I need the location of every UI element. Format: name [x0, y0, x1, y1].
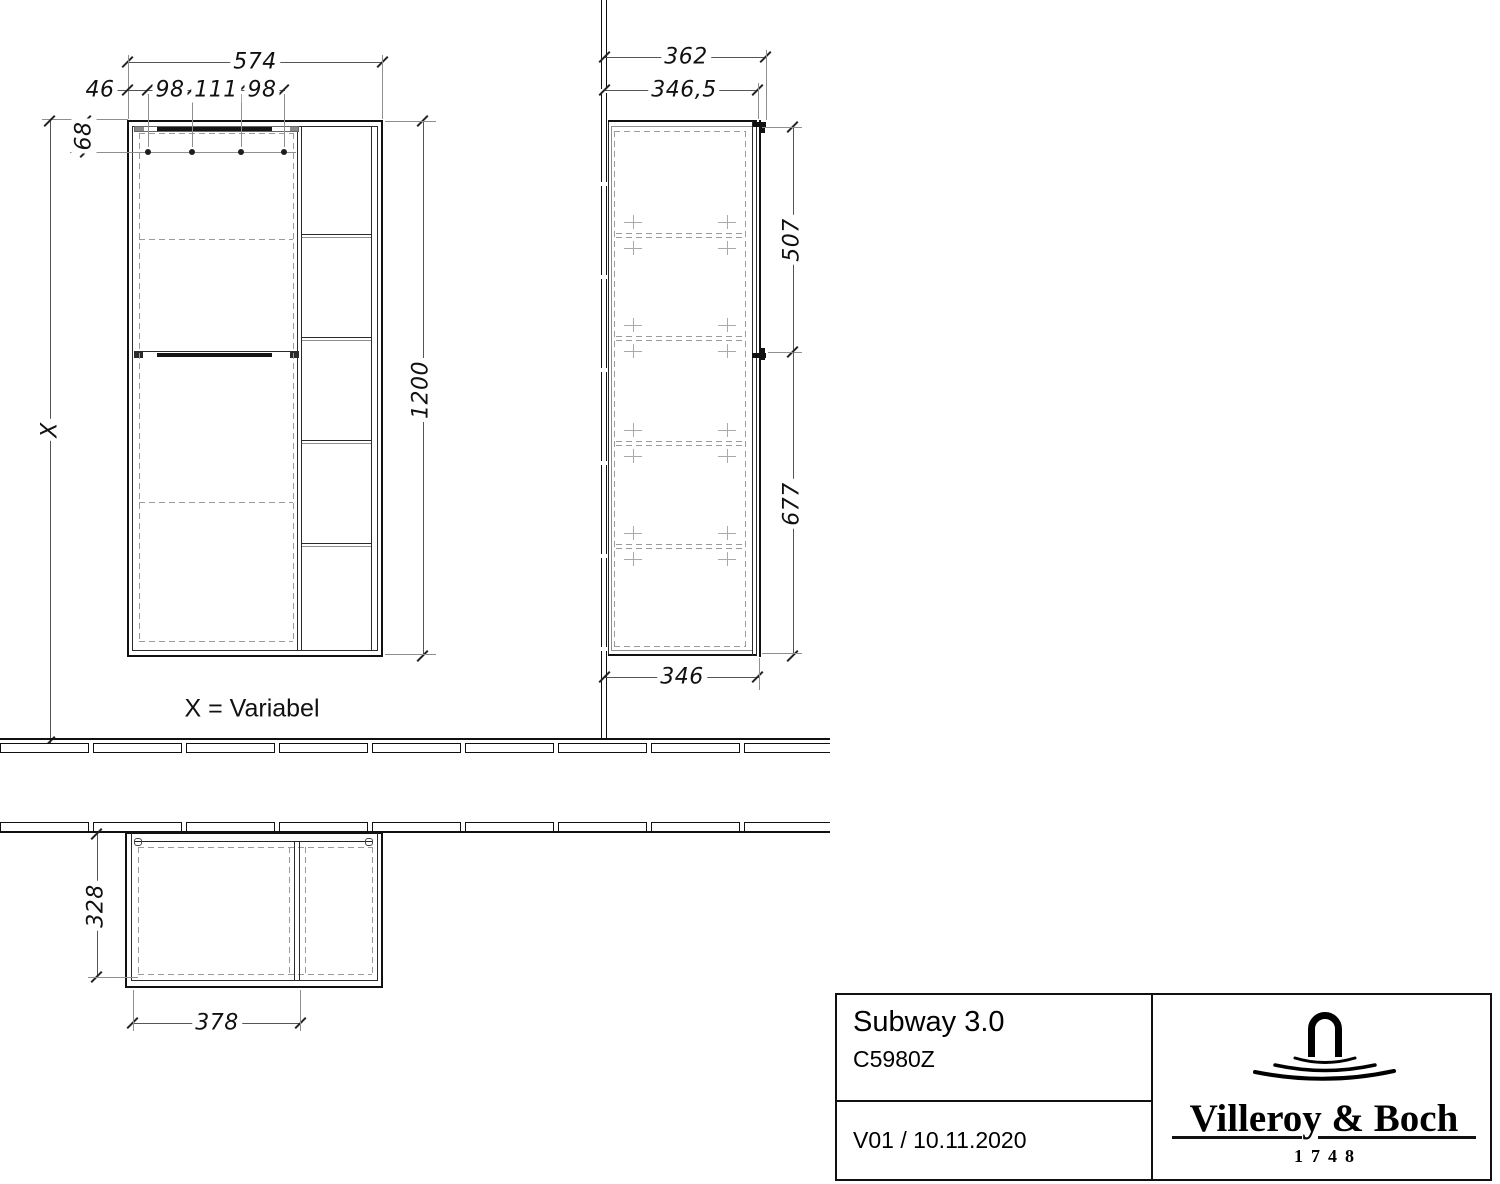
side-bottom-line	[608, 654, 757, 656]
shelf-pin-marker	[624, 344, 642, 358]
wall-segment	[601, 651, 607, 740]
extension-line	[758, 83, 759, 119]
wall-segment	[601, 279, 607, 368]
wall-section	[601, 0, 607, 740]
extension-line	[300, 990, 301, 1031]
upper-door-handle-bar	[157, 127, 272, 131]
shelf-line	[302, 543, 371, 544]
dim-text-111: 111	[191, 78, 241, 103]
extension-line	[382, 55, 383, 119]
side-bottom-inner-line	[611, 650, 752, 651]
extension-line	[88, 977, 138, 978]
brand-underline	[1172, 1136, 1302, 1139]
front-shelf-column-face-line	[371, 126, 372, 651]
hidden-interior-bottom	[614, 646, 745, 647]
shelf-pin-marker	[624, 449, 642, 463]
dim-text-507: 507	[780, 215, 805, 265]
extension-line	[241, 94, 242, 147]
shelf-pin-marker	[718, 449, 736, 463]
shelf-pin-marker	[718, 344, 736, 358]
hidden-top-line	[139, 133, 293, 134]
rail-end-knob	[134, 838, 142, 846]
extension-line	[133, 990, 134, 1031]
floor-tiles	[0, 743, 830, 753]
shelf-pin-marker	[718, 552, 736, 566]
front-inner-bottom-line	[132, 650, 378, 651]
wall-segment	[601, 93, 607, 182]
lower-door-handle-bar	[157, 353, 272, 357]
mounting-hole	[281, 149, 287, 155]
tile-segment	[372, 743, 461, 753]
dim-text-x: X	[38, 419, 63, 441]
mounting-hole	[189, 149, 195, 155]
title-block-divider-vertical	[1151, 993, 1153, 1181]
hidden-shelf	[616, 233, 744, 234]
wall-rail-line	[135, 841, 373, 842]
wall-segment	[601, 372, 607, 461]
bottom-inner-left-line	[131, 833, 132, 981]
handle-end-cap	[135, 127, 144, 131]
dim-text-68: 68	[72, 119, 97, 154]
floor-line	[0, 738, 830, 740]
rail-end-knob	[365, 838, 373, 846]
bottom-inner-front-line	[131, 980, 378, 981]
article-number: C5980Z	[853, 1046, 935, 1073]
bottom-divider-line	[299, 842, 300, 981]
villeroy-boch-logo-icon	[1250, 1004, 1398, 1086]
hidden-shelf-line	[139, 502, 293, 503]
brand-underline	[1318, 1136, 1476, 1139]
front-cabinet-outline	[127, 120, 383, 657]
hidden-shelf	[616, 548, 744, 549]
handle-end-cap	[290, 127, 298, 131]
dim-text-677: 677	[780, 479, 805, 529]
shelf-pin-marker	[718, 423, 736, 437]
tile-segment	[93, 743, 182, 753]
shelf-line	[302, 234, 371, 235]
shelf-line	[302, 546, 371, 547]
dim-text-98: 98	[245, 78, 280, 103]
dim-text-328: 328	[84, 881, 109, 931]
shelf-pin-marker	[718, 318, 736, 332]
dim-text-46: 46	[83, 78, 118, 103]
extension-line	[385, 121, 436, 122]
dim-text-1200: 1200	[409, 358, 434, 422]
mounting-hole	[145, 149, 151, 155]
drawing-canvas: 574 46 98 111 98 68 X 1200 X = Va	[0, 0, 1500, 1184]
tile-segment	[744, 743, 830, 753]
dim-text-98: 98	[153, 78, 188, 103]
shelf-pin-marker	[624, 423, 642, 437]
front-divider-line	[297, 126, 298, 651]
variable-note: X = Variabel	[184, 695, 319, 724]
hidden-shelf	[616, 544, 744, 545]
tile-segment	[465, 743, 554, 753]
tile-segment	[651, 743, 740, 753]
hidden-door-edge	[289, 847, 290, 975]
side-back-line	[608, 121, 609, 656]
wall-segment	[601, 465, 607, 554]
hidden-shelf	[616, 445, 744, 446]
side-top-inner-line	[611, 126, 752, 127]
hidden-shelf	[616, 441, 744, 442]
shelf-pin-marker	[718, 215, 736, 229]
wall-segment	[601, 558, 607, 647]
shelf-pin-marker	[718, 241, 736, 255]
shelf-line	[302, 443, 371, 444]
hidden-door-edge	[139, 133, 140, 641]
hidden-shelf	[616, 340, 744, 341]
side-carcass-front-line	[752, 121, 753, 656]
shelf-pin-marker	[624, 318, 642, 332]
hole-axis-line	[70, 152, 296, 153]
hidden-interior-front	[745, 131, 746, 647]
extension-line	[766, 50, 767, 120]
brand-name: Villeroy & Boch	[1166, 1096, 1482, 1141]
shelf-line	[302, 237, 371, 238]
hinge-middle	[760, 348, 765, 360]
shelf-pin-marker	[624, 241, 642, 255]
side-door-front-line	[759, 120, 761, 657]
hidden-door-edge	[305, 847, 306, 975]
hidden-interior-back	[614, 131, 615, 647]
front-inner-left-line	[132, 126, 133, 651]
hidden-shelf	[616, 237, 744, 238]
bottom-divider-line	[294, 842, 295, 981]
side-top-line	[608, 120, 757, 122]
side-back-inner-line	[611, 126, 612, 651]
dim-text-362: 362	[661, 45, 711, 70]
version-date: V01 / 10.11.2020	[853, 1127, 1027, 1154]
side-door-back-line	[756, 121, 757, 656]
extension-line	[762, 127, 802, 128]
wall-segment	[601, 0, 607, 89]
dim-text-378: 378	[192, 1011, 242, 1036]
front-inner-right-line	[377, 126, 378, 651]
wall-segment	[601, 186, 607, 275]
extension-line	[385, 654, 436, 655]
extension-line	[759, 658, 760, 690]
brand-year: 1748	[1166, 1146, 1482, 1167]
extension-line	[762, 653, 802, 654]
shelf-line	[302, 337, 371, 338]
dim-text-574: 574	[230, 50, 280, 75]
tile-segment	[186, 743, 275, 753]
shelf-line	[302, 440, 371, 441]
front-divider-line	[301, 126, 302, 651]
shelf-pin-marker	[624, 526, 642, 540]
extension-line	[148, 94, 149, 147]
dim-text-346-5: 346,5	[648, 78, 719, 103]
title-block-divider-horizontal	[835, 1100, 1151, 1102]
door-split-line	[134, 351, 299, 352]
hidden-inner-edge	[138, 974, 372, 975]
shelf-pin-marker	[624, 552, 642, 566]
hidden-inner-edge	[138, 847, 372, 848]
shelf-pin-marker	[718, 526, 736, 540]
shelf-line	[302, 340, 371, 341]
hidden-shelf	[616, 336, 744, 337]
product-name: Subway 3.0	[853, 1006, 1005, 1039]
handle-end-block	[290, 352, 299, 358]
extension-line	[284, 94, 285, 147]
hidden-inner-edge	[138, 847, 139, 975]
hidden-inner-edge	[372, 847, 373, 975]
hidden-interior-top	[614, 131, 745, 132]
bottom-inner-right-line	[377, 833, 378, 981]
tile-segment	[0, 743, 89, 753]
hidden-door-edge	[293, 133, 294, 641]
tile-segment	[558, 743, 647, 753]
tile-segment	[279, 743, 368, 753]
hidden-bottom-line	[139, 641, 293, 642]
dim-text-346: 346	[657, 665, 707, 690]
hidden-shelf-line	[139, 239, 293, 240]
shelf-pin-marker	[624, 215, 642, 229]
extension-line	[768, 352, 802, 353]
mounting-hole	[238, 149, 244, 155]
bottom-cabinet-outline	[125, 832, 383, 988]
